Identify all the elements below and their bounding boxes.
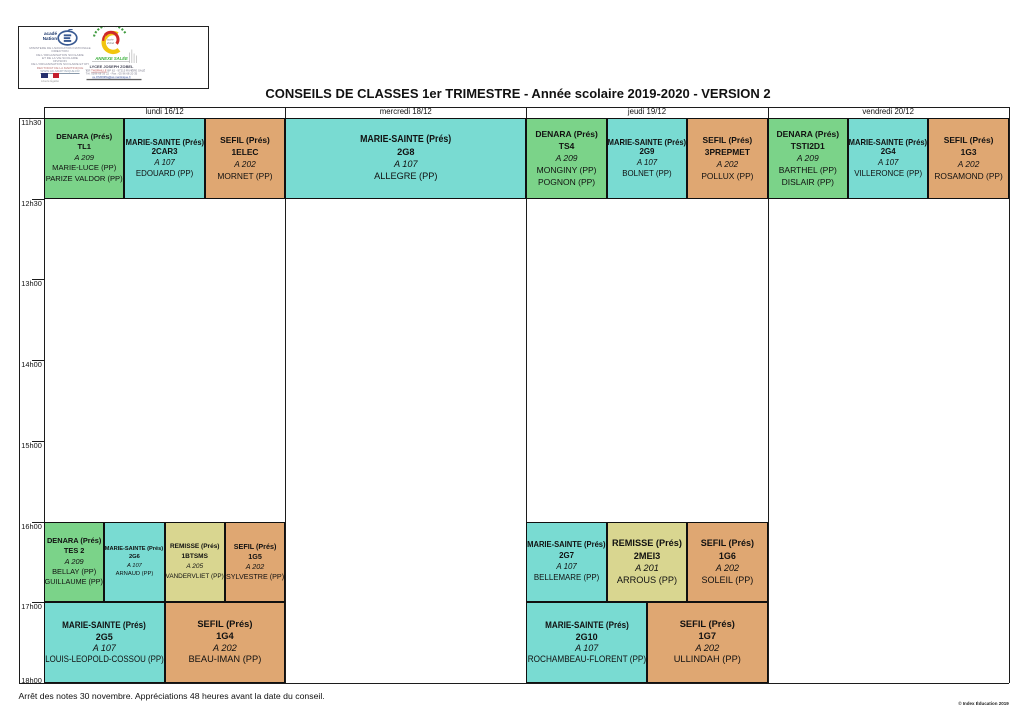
svg-text:ce.9720695q@ac-martinique.fr: ce.9720695q@ac-martinique.fr: [92, 75, 131, 79]
svg-text:Zobel: Zobel: [106, 41, 114, 45]
svg-text:ANNEXE SALÉE: ANNEXE SALÉE: [94, 56, 128, 61]
